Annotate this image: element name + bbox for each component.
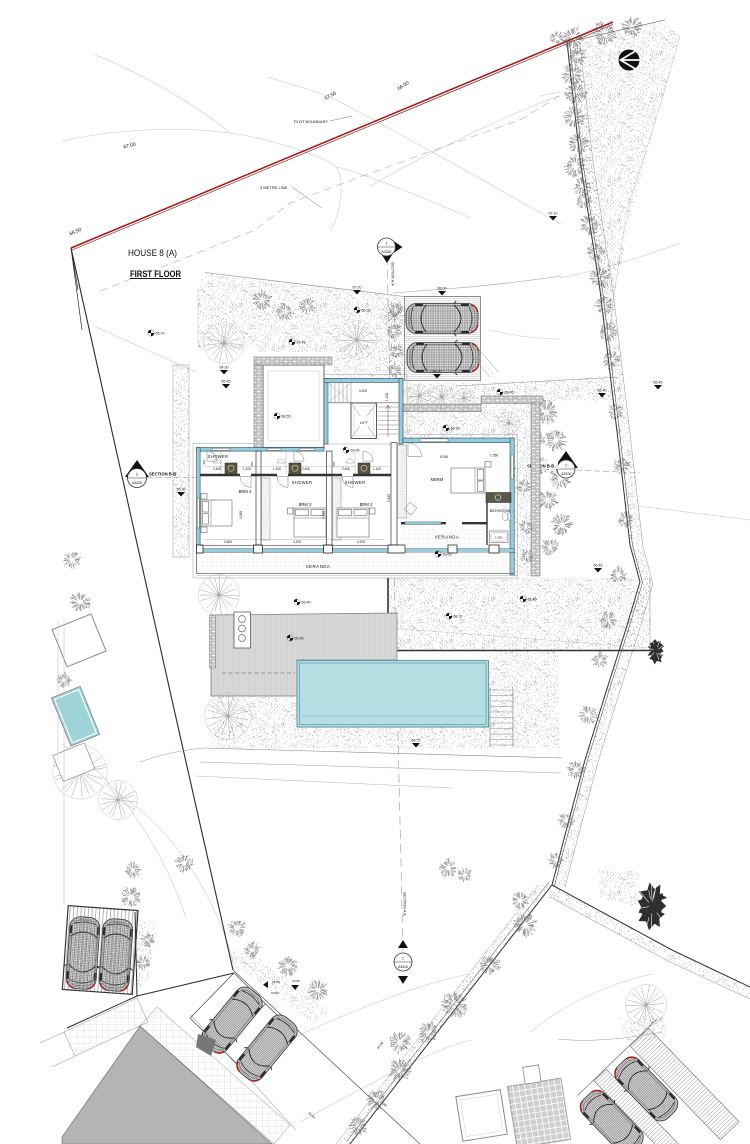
svg-text:SECTION A.A: SECTION A.A xyxy=(403,892,407,916)
svg-text:LIFT: LIFT xyxy=(360,420,369,425)
svg-text:68.55: 68.55 xyxy=(282,414,291,418)
svg-text:68.30: 68.30 xyxy=(433,370,442,374)
svg-text:A3326: A3326 xyxy=(561,472,571,476)
svg-text:FIRST FLOOR: FIRST FLOOR xyxy=(130,269,181,280)
svg-text:65.45: 65.45 xyxy=(297,340,306,344)
svg-text:600: 600 xyxy=(250,461,254,466)
svg-text:4.200: 4.200 xyxy=(359,389,367,393)
svg-text:3.480: 3.480 xyxy=(322,511,326,519)
svg-text:1.100: 1.100 xyxy=(373,467,381,471)
svg-text:A3326: A3326 xyxy=(398,965,408,969)
svg-text:SHOWER: SHOWER xyxy=(208,454,229,459)
svg-text:1.100: 1.100 xyxy=(385,393,389,401)
svg-text:2.400: 2.400 xyxy=(342,467,350,471)
svg-text:1.050: 1.050 xyxy=(490,454,498,458)
svg-text:5.045: 5.045 xyxy=(440,455,448,459)
svg-text:65.45: 65.45 xyxy=(654,381,663,385)
svg-text:3.600: 3.600 xyxy=(224,540,232,544)
svg-text:PLOT BOUNDARY: PLOT BOUNDARY xyxy=(294,119,328,124)
svg-text:3 METRE LINE: 3 METRE LINE xyxy=(260,185,288,190)
svg-text:VERANDA: VERANDA xyxy=(306,564,331,569)
svg-text:2: 2 xyxy=(565,464,567,468)
svg-text:SECTION A.A: SECTION A.A xyxy=(391,262,395,286)
svg-text:A3326: A3326 xyxy=(132,481,142,485)
svg-text:65.30: 65.30 xyxy=(177,488,186,492)
svg-text:BRM 4: BRM 4 xyxy=(239,489,252,494)
svg-text:1.100: 1.100 xyxy=(243,467,251,471)
svg-text:BRM 2: BRM 2 xyxy=(360,502,373,507)
svg-text:65.40: 65.40 xyxy=(528,597,537,601)
svg-text:BRM 3: BRM 3 xyxy=(299,502,312,507)
svg-text:SHOWER: SHOWER xyxy=(345,480,366,485)
svg-text:2.400: 2.400 xyxy=(213,467,221,471)
svg-text:A3326: A3326 xyxy=(382,250,392,254)
svg-text:68.70: 68.70 xyxy=(454,614,463,618)
svg-text:SECTION B-B: SECTION B-B xyxy=(149,472,176,477)
svg-text:600: 600 xyxy=(332,461,336,466)
svg-text:2: 2 xyxy=(136,473,138,477)
svg-text:67.10: 67.10 xyxy=(549,212,558,216)
svg-text:1.100: 1.100 xyxy=(273,467,281,471)
svg-text:68.95: 68.95 xyxy=(451,426,460,430)
svg-text:65.45: 65.45 xyxy=(505,390,514,394)
svg-text:MBRM: MBRM xyxy=(431,477,444,482)
svg-text:65.45: 65.45 xyxy=(222,380,231,384)
svg-text:HOUSE 8 (A): HOUSE 8 (A) xyxy=(128,248,177,259)
svg-text:2.400: 2.400 xyxy=(302,467,310,471)
svg-text:4.200: 4.200 xyxy=(293,540,301,544)
svg-text:65.40: 65.40 xyxy=(302,600,311,604)
svg-text:65.45: 65.45 xyxy=(295,636,304,640)
svg-text:4.000: 4.000 xyxy=(239,511,243,519)
svg-text:65.70: 65.70 xyxy=(156,331,165,335)
svg-text:68.00: 68.00 xyxy=(438,287,447,291)
svg-text:3.480: 3.480 xyxy=(387,494,391,502)
svg-text:67.10: 67.10 xyxy=(353,286,362,290)
svg-text:64.30: 64.30 xyxy=(220,366,229,370)
svg-text:65.35: 65.35 xyxy=(362,308,371,312)
svg-text:65.45: 65.45 xyxy=(594,564,603,568)
svg-text:65.40: 65.40 xyxy=(598,389,607,393)
svg-text:4.200: 4.200 xyxy=(357,540,365,544)
svg-text:64.75: 64.75 xyxy=(412,739,421,743)
svg-text:BATHROOM: BATHROOM xyxy=(490,509,511,513)
svg-text:1: 1 xyxy=(402,957,404,961)
svg-text:63.85: 63.85 xyxy=(292,979,300,983)
svg-text:VERANDA: VERANDA xyxy=(435,535,460,540)
svg-text:1: 1 xyxy=(386,242,388,246)
svg-text:SHOWER: SHOWER xyxy=(292,480,313,485)
svg-text:69.00: 69.00 xyxy=(443,552,452,556)
svg-text:600: 600 xyxy=(202,459,206,464)
